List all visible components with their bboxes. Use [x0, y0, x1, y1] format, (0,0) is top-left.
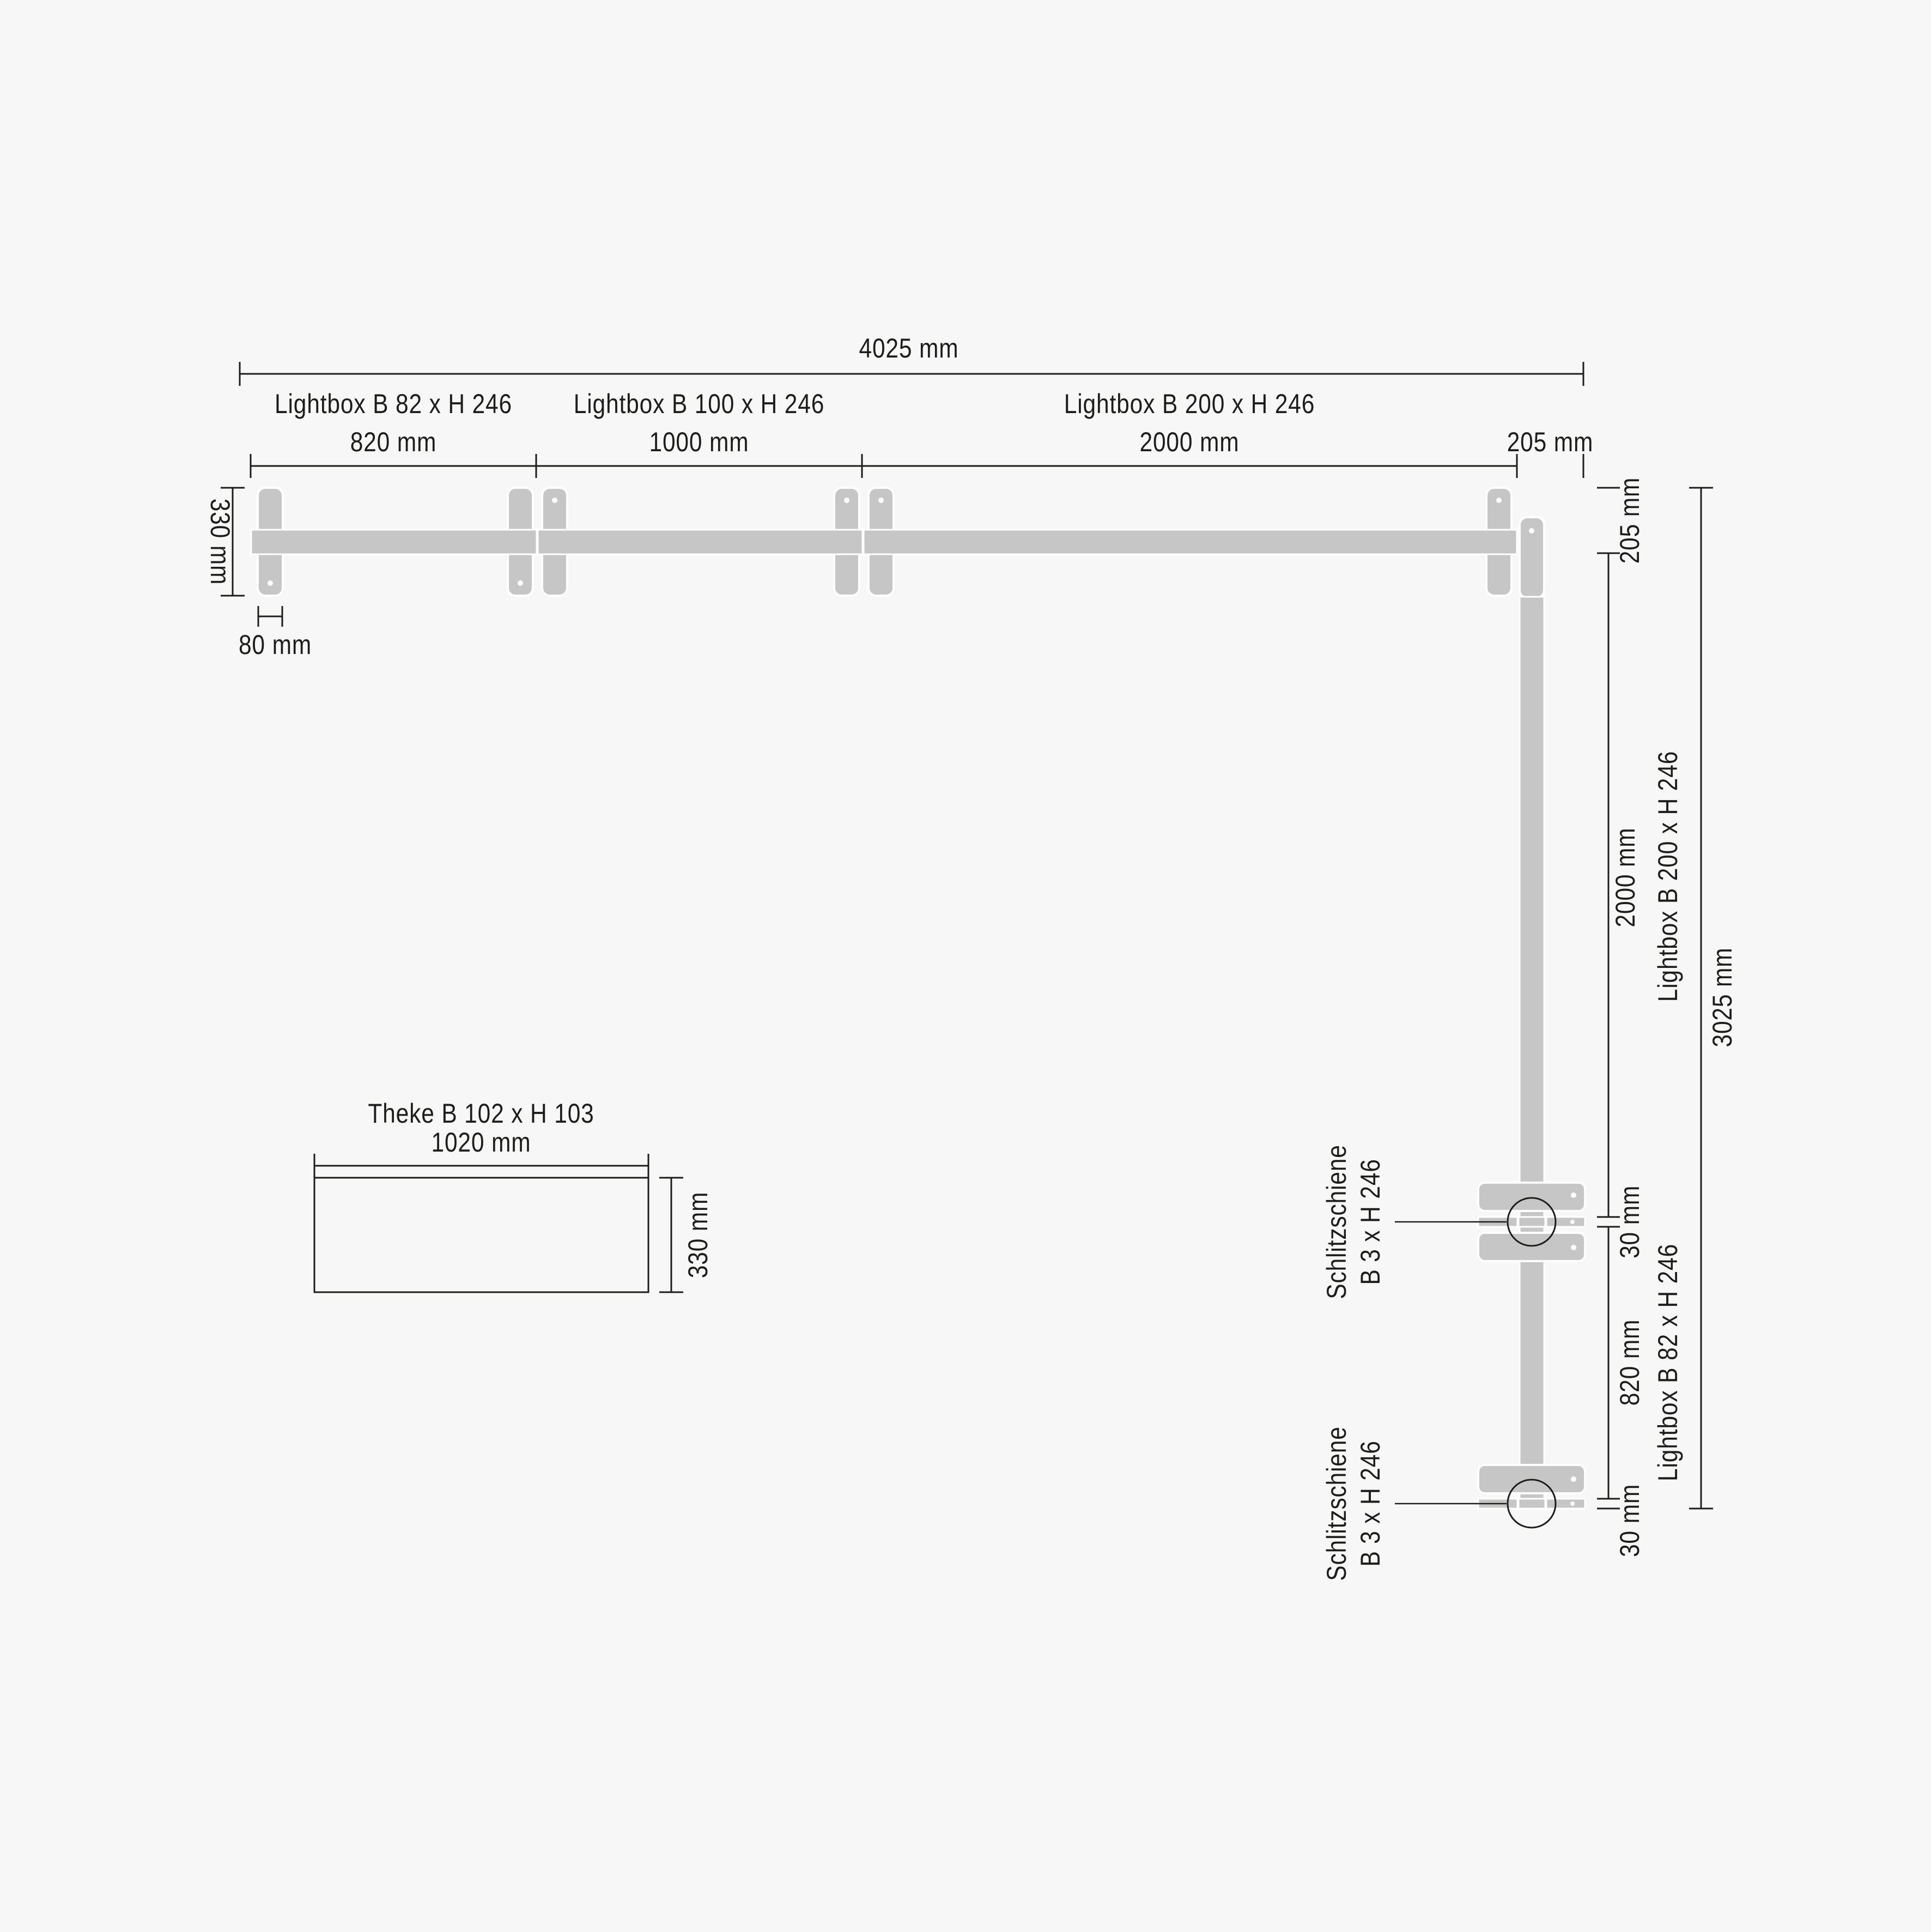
dim-right-820: 820 mm Lightbox B 82 x H 246 — [1608, 1227, 1683, 1499]
fixing-dot — [878, 498, 884, 503]
rail-label-line1: Schlitzschiene — [1321, 1426, 1352, 1581]
dim-text-segment-width: 820 mm — [350, 427, 437, 457]
segment-label: Lightbox B 100 x H 246 — [574, 389, 824, 419]
horizontal-wall-bar — [251, 530, 1517, 554]
dim-text-segment-width: 1000 mm — [649, 427, 749, 457]
fixing-dot — [518, 580, 523, 586]
fixing-dots — [268, 498, 1576, 1506]
dim-right-2000: 2000 mm Lightbox B 200 x H 246 — [1608, 553, 1683, 1217]
fixing-dot — [1570, 1501, 1575, 1506]
dim-text-corner-offset: 205 mm — [1507, 427, 1594, 457]
fixing-dot — [268, 580, 273, 586]
segment-label: Lightbox B 82 x H 246 — [1653, 1244, 1683, 1481]
dim-text-rail-gap: 30 mm — [1614, 1185, 1645, 1258]
rail-label-line1: Schlitzschiene — [1321, 1144, 1352, 1299]
dim-overall-width: 4025 mm — [240, 333, 1583, 386]
dim-text-segment-width: 2000 mm — [1139, 427, 1239, 457]
fixing-dot — [1571, 1476, 1576, 1482]
fixing-dot — [1571, 1245, 1576, 1250]
dim-rail-gap-bottom: 30 mm — [1597, 1484, 1645, 1557]
dim-text-foot-depth: 330 mm — [205, 499, 235, 585]
dim-text-counter-depth: 330 mm — [683, 1192, 713, 1279]
dim-text-rail-gap: 30 mm — [1614, 1484, 1645, 1557]
segment-label: Lightbox B 200 x H 246 — [1653, 751, 1683, 1002]
floor-plan-drawing: 4025 mm Lightbox B 82 x H 246 Lightbox B… — [0, 0, 1931, 1932]
rail-plate-lower — [1478, 1233, 1585, 1261]
rail-plate-upper — [1478, 1183, 1585, 1211]
vertical-wall-bar-lower — [1520, 1227, 1544, 1499]
segment-label: Lightbox B 82 x H 246 — [275, 389, 512, 419]
fixing-dot — [844, 498, 849, 503]
dim-foot-depth: 330 mm — [205, 488, 245, 596]
wall-bars — [251, 528, 1544, 1499]
dim-text-counter-width: 1020 mm — [431, 1127, 531, 1158]
counter-drawing: Theke B 102 x H 103 1020 mm 330 mm — [314, 1098, 713, 1292]
dim-foot-width: 80 mm — [239, 606, 312, 660]
dim-text-right-offset: 205 mm — [1614, 477, 1645, 564]
fixing-dot — [1570, 1220, 1575, 1224]
dim-text-foot-width: 80 mm — [239, 629, 312, 660]
fixing-dot — [1529, 528, 1534, 534]
counter-outline — [314, 1178, 648, 1292]
vertical-wall-bar-upper — [1520, 597, 1544, 1217]
dim-top-segments: 820 mm 1000 mm 2000 mm 205 mm — [251, 427, 1593, 478]
fixing-dot — [1496, 498, 1502, 503]
dim-text-overall-width: 4025 mm — [859, 333, 958, 364]
dim-rail-gap-top: 30 mm — [1597, 1185, 1645, 1258]
dim-text-overall-height: 3025 mm — [1707, 947, 1738, 1047]
counter-title: Theke B 102 x H 103 — [368, 1098, 594, 1129]
fixing-dot — [1571, 1192, 1576, 1198]
fixing-dot — [552, 498, 557, 503]
dim-right-offset: 205 mm — [1597, 477, 1645, 564]
dim-overall-height: 3025 mm — [1689, 488, 1738, 1509]
segment-label: Lightbox B 200 x H 246 — [1064, 389, 1315, 419]
dim-text-segment-width: 820 mm — [1614, 1319, 1645, 1406]
dim-text-segment-width: 2000 mm — [1610, 827, 1641, 927]
plan-canvas: 4025 mm Lightbox B 82 x H 246 Lightbox B… — [0, 0, 1931, 1932]
rail-label-line2: B 3 x H 246 — [1355, 1440, 1386, 1566]
rail-label-line2: B 3 x H 246 — [1355, 1159, 1386, 1285]
top-wall-labels: Lightbox B 82 x H 246 Lightbox B 100 x H… — [275, 389, 1315, 419]
